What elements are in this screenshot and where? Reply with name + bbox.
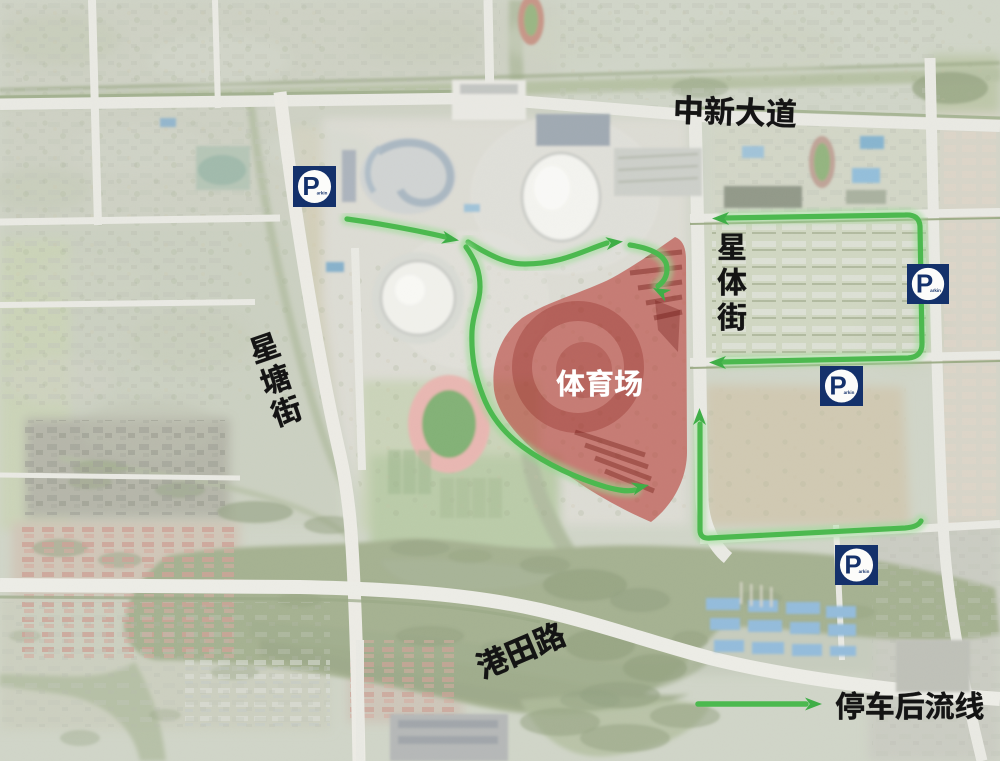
svg-text:arkin: arkin bbox=[930, 288, 941, 293]
svg-text:P: P bbox=[302, 171, 319, 201]
svg-text:arkin: arkin bbox=[844, 390, 855, 395]
svg-text:arkin: arkin bbox=[859, 569, 870, 574]
svg-text:P: P bbox=[829, 371, 846, 401]
svg-text:P: P bbox=[844, 550, 861, 580]
svg-text:P: P bbox=[916, 269, 933, 299]
svg-text:arkin: arkin bbox=[317, 191, 328, 196]
